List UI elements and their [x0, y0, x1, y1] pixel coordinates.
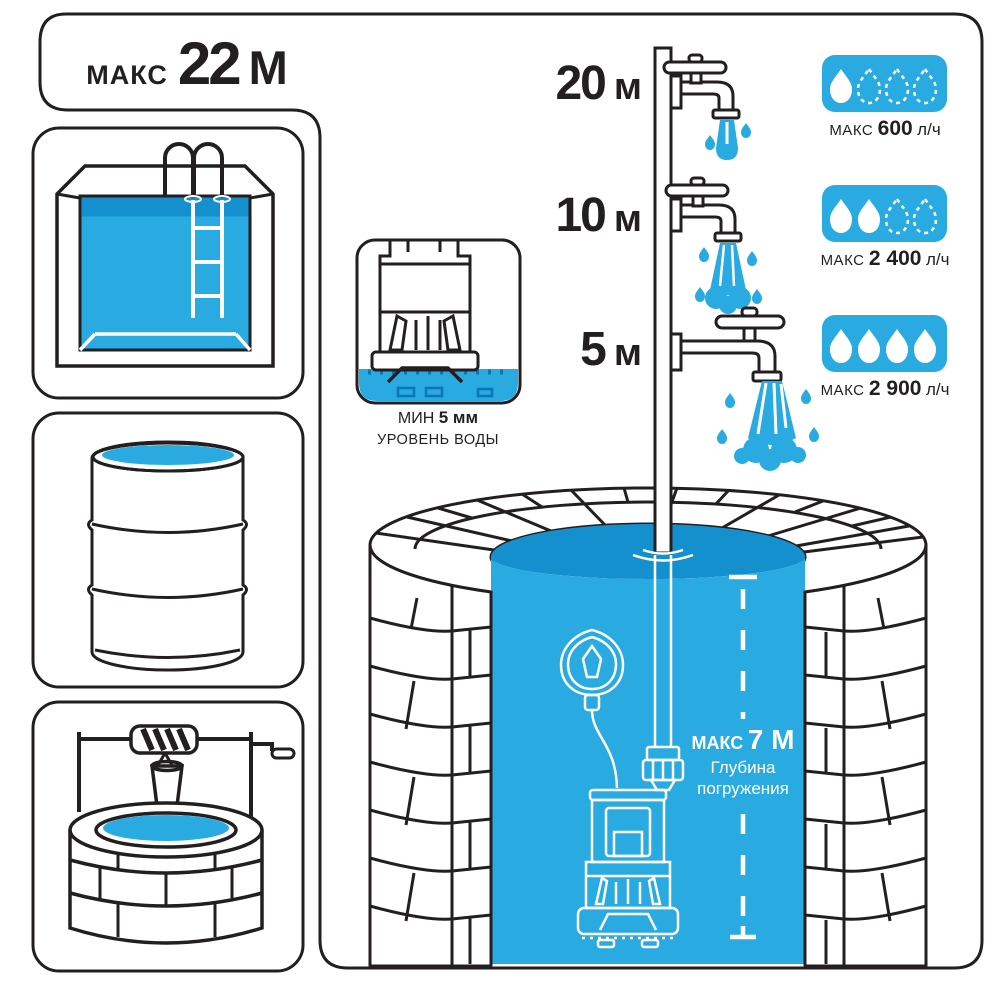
immersion-caption: МАКС 7 М Глубина погружения — [664, 722, 822, 800]
infographic-artwork — [0, 0, 1000, 1000]
flow-caption-2900: МАКС 2 900 л/ч — [800, 378, 970, 399]
flow-unit: л/ч — [917, 120, 941, 139]
flow-caption-600: МАКС 600 л/ч — [800, 118, 970, 139]
flow-value: 600 — [878, 117, 913, 140]
flow-label: МАКС — [829, 122, 873, 139]
outlet-height-10m: 10 м — [460, 192, 642, 240]
flow-badge-2400 — [822, 185, 947, 242]
flow-caption-2400: МАКС 2 400 л/ч — [800, 248, 970, 269]
outlet-height-20m: 20 м — [460, 60, 642, 108]
min-level-caption: МИН 5 мм УРОВЕНЬ ВОДЫ — [352, 406, 524, 451]
flow-value: 2 400 — [869, 247, 922, 270]
flow-label: МАКС — [821, 382, 865, 399]
well-icon — [70, 726, 294, 943]
max-head-unit: М — [249, 44, 288, 91]
min-level-label: МИН — [398, 410, 434, 427]
pump-infographic: МАКС 22 М 20 м 10 м 5 м МАКС 600 л/ч МАК… — [0, 0, 1000, 1000]
outlet-height-5m: 5 м — [460, 326, 642, 374]
outlet-height-value: 5 — [580, 326, 605, 374]
barrel-icon — [89, 442, 247, 670]
flow-label: МАКС — [821, 252, 865, 269]
outlet-height-unit: м — [614, 334, 642, 372]
flow-value: 2 900 — [869, 377, 922, 400]
immersion-caption-line2: погружения — [664, 778, 822, 799]
flow-badge-2900 — [822, 315, 947, 372]
min-level-subcaption: УРОВЕНЬ ВОДЫ — [352, 430, 524, 450]
max-head-label: МАКС 22 М — [56, 34, 318, 96]
flow-unit: л/ч — [926, 250, 950, 269]
immersion-caption-line1: Глубина — [664, 757, 822, 778]
flow-unit: л/ч — [926, 380, 950, 399]
max-head-prefix: МАКС — [86, 62, 168, 89]
immersion-value: 7 М — [748, 724, 795, 755]
immersion-label: МАКС — [692, 733, 744, 753]
standpipe — [655, 48, 671, 553]
pool-icon — [57, 144, 273, 366]
max-head-value: 22 — [178, 34, 239, 94]
outlet-height-value: 20 — [555, 60, 604, 108]
outlet-height-unit: м — [614, 200, 642, 238]
outlet-height-value: 10 — [555, 192, 604, 240]
min-level-value: 5 мм — [439, 408, 478, 427]
flow-badge-600 — [822, 55, 947, 112]
outlet-height-unit: м — [614, 68, 642, 106]
